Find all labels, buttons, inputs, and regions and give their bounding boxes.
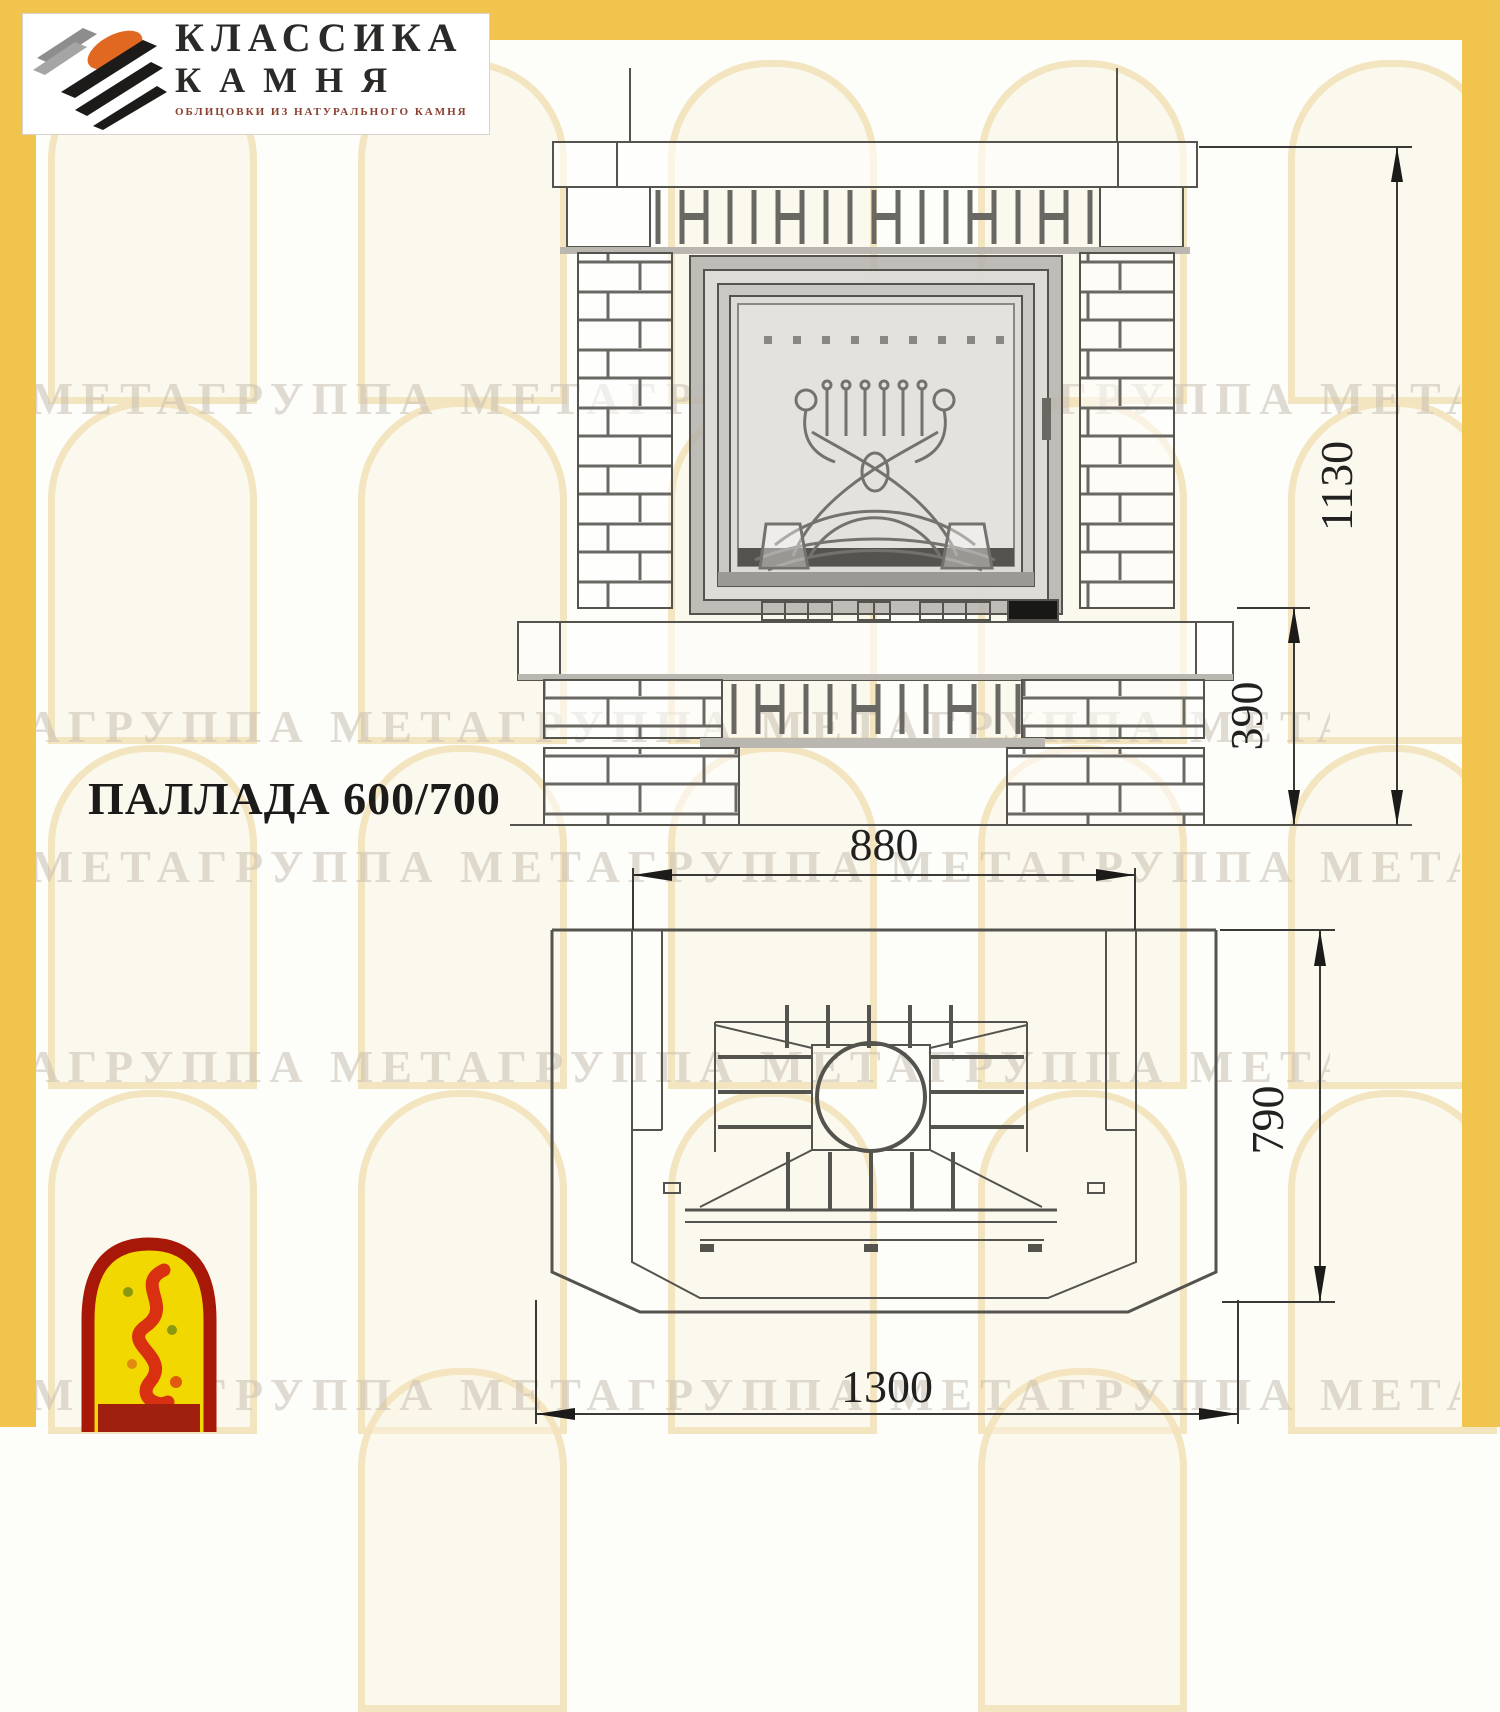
technical-drawing: 1130 390 (0, 0, 1500, 1427)
firebox-vent-dots (764, 336, 1004, 344)
base-upper-band (544, 680, 1204, 748)
plan-casing (552, 930, 1216, 1312)
page-frame-right (1462, 0, 1500, 1427)
brand-logo-icon (31, 18, 171, 130)
base-pedestals (544, 748, 1204, 825)
brand-name: КЛАССИКА КАМНЯ ОБЛИЦОВКИ ИЗ НАТУРАЛЬНОГО… (175, 16, 487, 134)
brand-logo: КЛАССИКА КАМНЯ ОБЛИЦОВКИ ИЗ НАТУРАЛЬНОГО… (22, 13, 490, 135)
plan-insert (664, 1005, 1104, 1252)
dimension-base-height: 390 (1221, 682, 1272, 751)
ash-drawer (1008, 600, 1058, 620)
brand-line2: КАМНЯ (175, 60, 487, 100)
dimension-depth: 790 (1242, 1086, 1293, 1155)
chimney-lines (630, 68, 1117, 142)
hearth-shelf (518, 622, 1233, 680)
dimension-total-height: 1130 (1311, 441, 1362, 531)
flue-collar-circle (817, 1043, 925, 1151)
dimension-opening-width: 880 (850, 819, 919, 870)
metagruppa-arch-logo (76, 1232, 222, 1432)
brand-line1: КЛАССИКА (175, 16, 487, 60)
firebox-door (690, 256, 1062, 614)
brand-tagline: ОБЛИЦОВКИ ИЗ НАТУРАЛЬНОГО КАМНЯ (175, 106, 487, 118)
page-frame-left (0, 0, 36, 1427)
elevation-dimensions: 1130 390 (1199, 147, 1412, 825)
mantel-shelf (553, 142, 1197, 187)
door-handle (1042, 398, 1051, 440)
upper-frieze (560, 187, 1190, 254)
front-elevation-view (510, 68, 1412, 825)
model-title: ПАЛЛАДА 600/700 (88, 772, 501, 825)
plan-view (552, 930, 1216, 1312)
spec-sheet-page: { "brand": { "line1": "КЛАССИКА", "line2… (0, 0, 1500, 1427)
dimension-total-width: 1300 (841, 1361, 933, 1412)
